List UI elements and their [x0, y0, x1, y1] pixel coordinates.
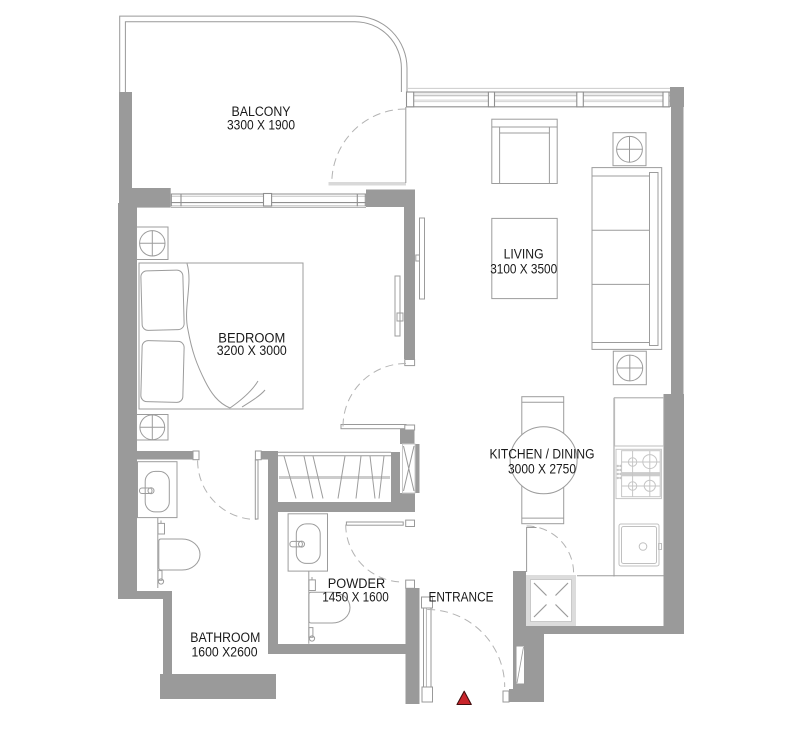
svg-text:1600 X2600: 1600 X2600: [192, 645, 258, 660]
svg-text:LIVING: LIVING: [504, 247, 544, 262]
svg-text:BATHROOM: BATHROOM: [190, 630, 260, 645]
svg-text:3200 X 3000: 3200 X 3000: [217, 343, 287, 358]
svg-text:3300 X 1900: 3300 X 1900: [227, 118, 295, 133]
svg-text:KITCHEN / DINING: KITCHEN / DINING: [490, 447, 595, 462]
svg-text:ENTRANCE: ENTRANCE: [429, 590, 494, 605]
svg-text:1450 X 1600: 1450 X 1600: [322, 590, 389, 605]
svg-text:3000 X 2750: 3000 X 2750: [508, 462, 576, 477]
svg-text:3100 X 3500: 3100 X 3500: [490, 261, 557, 276]
